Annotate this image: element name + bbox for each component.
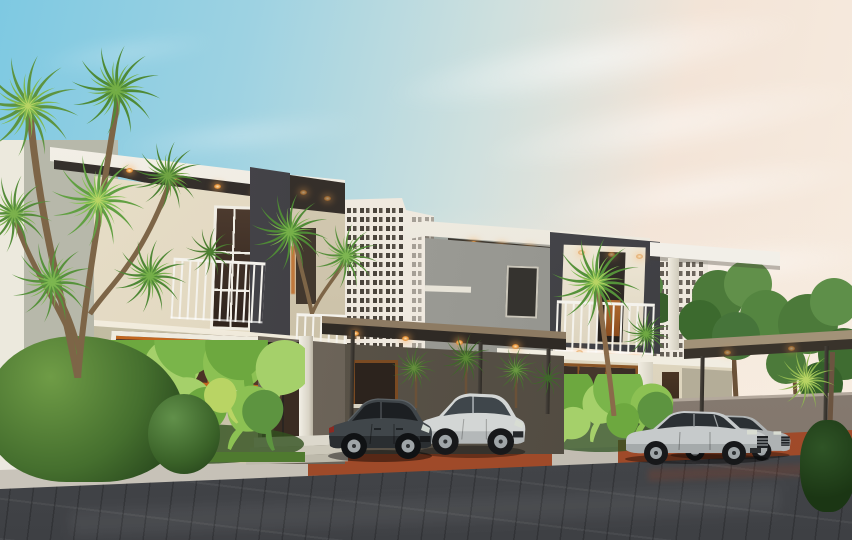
architectural-render-scene <box>0 0 852 540</box>
left-palm-tree <box>0 14 240 378</box>
hedge-bush-small <box>148 394 220 474</box>
car-hatchback-dark <box>324 384 436 464</box>
mid-palm-tree <box>228 182 378 314</box>
house2-palm-tree <box>528 226 678 416</box>
wall-palm-accent <box>758 344 852 424</box>
